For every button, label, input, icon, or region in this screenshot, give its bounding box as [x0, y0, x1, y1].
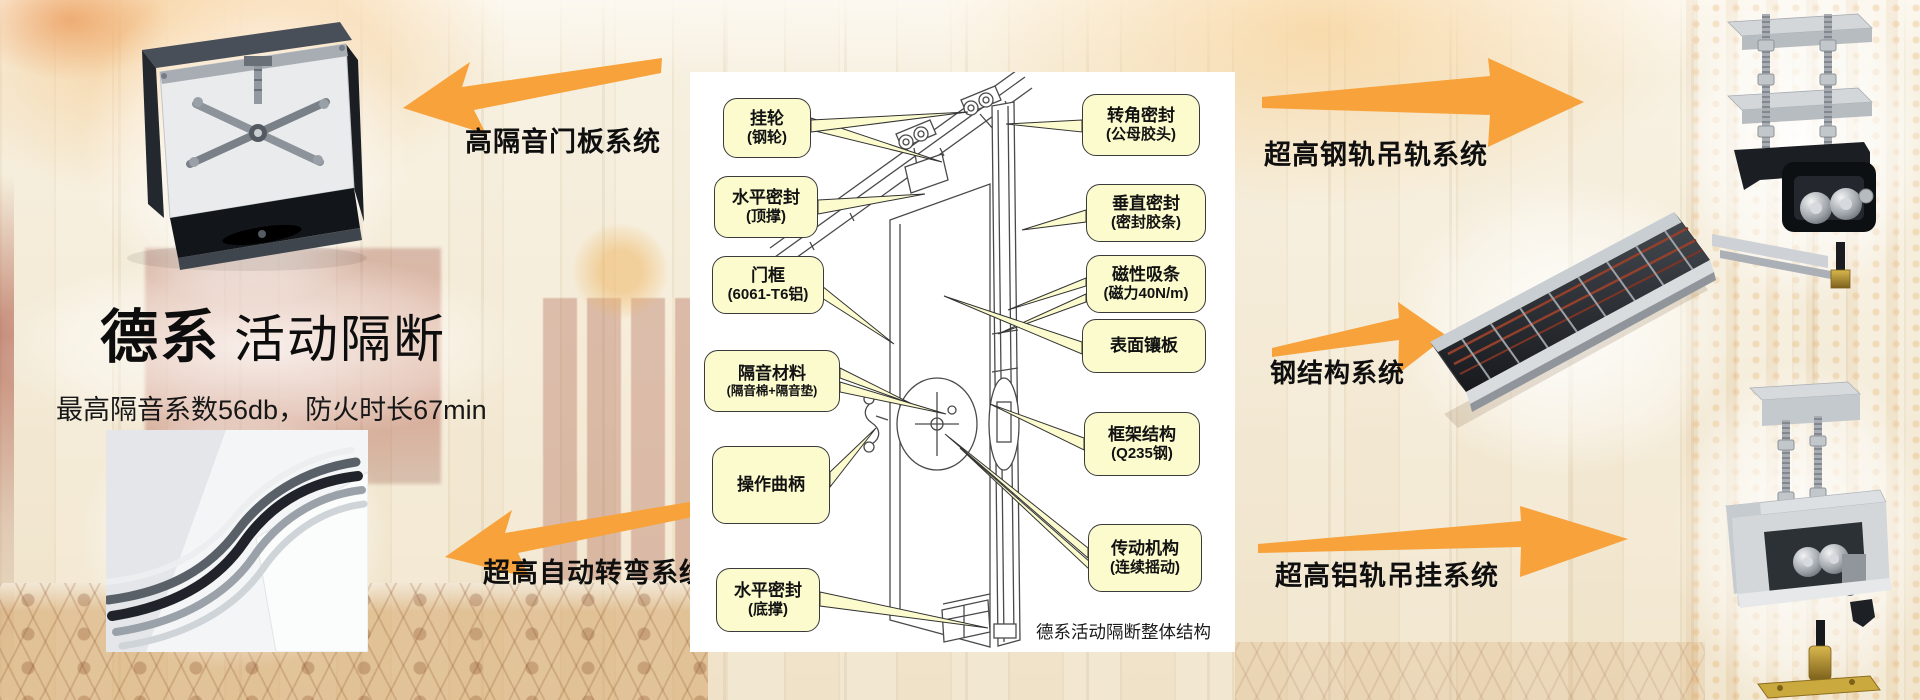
callout-text: 表面镶板	[1110, 335, 1178, 356]
callout-surface-panel: 表面镶板	[1082, 319, 1206, 373]
callout-text: 水平密封	[732, 187, 800, 208]
callout-vertical-seal: 垂直密封 (密封胶条)	[1086, 184, 1206, 242]
photo-steel-structure	[1414, 196, 1718, 458]
callout-text: (密封胶条)	[1111, 214, 1181, 233]
photo-steel-rail-trolley	[1700, 2, 1915, 290]
callout-corner-seal: 转角密封 (公母胶头)	[1082, 94, 1200, 156]
label-auto-bend-system: 超高自动转弯系统	[483, 551, 707, 590]
photo-aluminum-rail-hanger	[1700, 376, 1915, 700]
callout-text: (连续摇动)	[1110, 559, 1180, 578]
callout-horizontal-seal-bottom: 水平密封 (底撑)	[716, 568, 820, 632]
label-steel-structure-system: 钢结构系统	[1270, 353, 1405, 390]
background-wall-medallion	[572, 222, 670, 320]
callout-text: (Q235钢)	[1111, 445, 1173, 464]
structure-diagram-panel: 挂轮 (钢轮) 水平密封 (顶撑) 门框 (6061-T6铝) 隔音材料 (隔音…	[690, 72, 1235, 652]
background-red-door-panels	[543, 298, 695, 580]
label-door-panel-system: 高隔音门板系统	[465, 120, 661, 159]
callout-door-frame: 门框 (6061-T6铝)	[712, 256, 824, 314]
callout-transmission-mechanism: 传动机构 (连续摇动)	[1088, 524, 1202, 592]
label-aluminum-rail-system: 超高铝轨吊挂系统	[1275, 554, 1499, 593]
background-carpet-right	[1235, 642, 1705, 700]
callout-text: (底撑)	[748, 601, 788, 620]
callout-horizontal-seal-top: 水平密封 (顶撑)	[714, 176, 818, 238]
callout-text: (磁力40N/m)	[1103, 285, 1188, 304]
callout-text: 水平密封	[734, 580, 802, 601]
callout-text: (6061-T6铝)	[728, 286, 809, 305]
photo-door-panel-system	[112, 6, 382, 278]
title-emphasis: 德系	[100, 290, 220, 374]
title-rest: 活动隔断	[234, 298, 446, 372]
callout-text: 挂轮	[750, 108, 784, 129]
callout-text: 传动机构	[1111, 538, 1179, 559]
callout-sound-insulation-material: 隔音材料 (隔音棉+隔音垫)	[704, 350, 840, 412]
callout-text: 垂直密封	[1112, 193, 1180, 214]
callout-text: 框架结构	[1108, 424, 1176, 445]
callout-frame-structure: 框架结构 (Q235钢)	[1084, 412, 1200, 476]
slide-canvas: 德系 活动隔断 最高隔音系数56db，防火时长67min 高隔音门板系统 超高自…	[0, 0, 1920, 700]
callout-magnetic-strip: 磁性吸条 (磁力40N/m)	[1086, 255, 1206, 313]
callout-text: 隔音材料	[738, 363, 806, 384]
diagram-caption: 德系活动隔断整体结构	[1036, 619, 1211, 644]
callout-text: 操作曲柄	[737, 474, 805, 495]
product-subtitle: 最高隔音系数56db，防火时长67min	[56, 388, 487, 427]
callout-hanging-wheel: 挂轮 (钢轮)	[723, 98, 811, 158]
callout-text: 转角密封	[1107, 105, 1175, 126]
callout-text: (顶撑)	[746, 208, 786, 227]
callout-text: (钢轮)	[747, 129, 787, 148]
callout-text: 门框	[751, 265, 785, 286]
callout-operating-crank: 操作曲柄	[712, 446, 830, 524]
callout-text: 磁性吸条	[1112, 264, 1180, 285]
product-title: 德系 活动隔断	[100, 290, 446, 374]
label-steel-rail-system: 超高钢轨吊轨系统	[1264, 133, 1488, 172]
callout-text: (公母胶头)	[1106, 126, 1176, 145]
callout-text: (隔音棉+隔音垫)	[727, 384, 818, 400]
photo-bend-track-system	[106, 430, 368, 652]
